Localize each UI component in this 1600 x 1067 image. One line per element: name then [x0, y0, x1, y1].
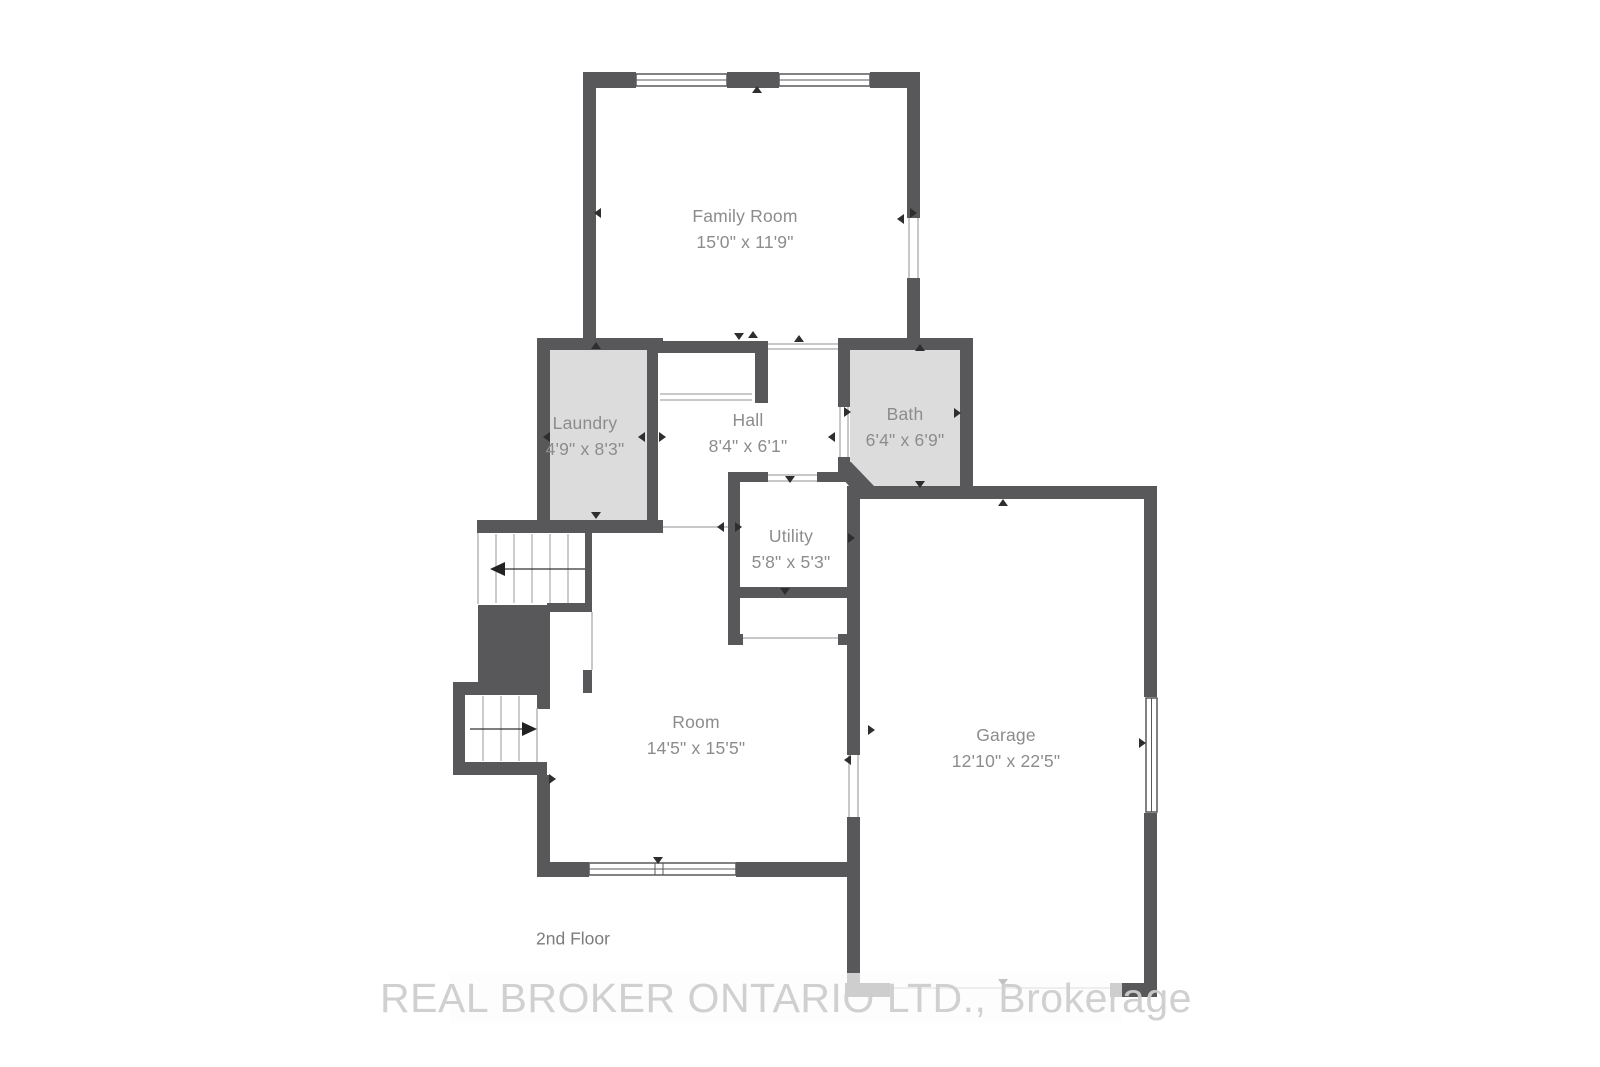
room-dims: 14'5" x 15'5"	[647, 735, 746, 761]
door-ticks	[543, 86, 1146, 986]
room-name: Utility	[752, 523, 831, 549]
room-dims: 4'9" x 8'3"	[546, 436, 625, 462]
room-dims: 6'4" x 6'9"	[866, 427, 945, 453]
room-label-utility: Utility 5'8" x 5'3"	[752, 523, 831, 575]
room-name: Bath	[866, 401, 945, 427]
room-label-bath: Bath 6'4" x 6'9"	[866, 401, 945, 453]
room-dims: 8'4" x 6'1"	[709, 433, 788, 459]
room-dims: 12'10" x 22'5"	[952, 748, 1061, 774]
room-name: Laundry	[546, 410, 625, 436]
room-name: Hall	[709, 407, 788, 433]
room-dims: 15'0" x 11'9"	[692, 229, 797, 255]
stair-landing-void	[478, 605, 550, 683]
room-label-garage: Garage 12'10" x 22'5"	[952, 722, 1061, 774]
floor-plan: Family Room 15'0" x 11'9" Laundry 4'9" x…	[0, 0, 1600, 1067]
room-label-room: Room 14'5" x 15'5"	[647, 709, 746, 761]
room-label-laundry: Laundry 4'9" x 8'3"	[546, 410, 625, 462]
watermark-text: REAL BROKER ONTARIO LTD., Brokerage	[380, 975, 1192, 1022]
floor-label: 2nd Floor	[536, 929, 610, 950]
room-dims: 5'8" x 5'3"	[752, 549, 831, 575]
room-label-hall: Hall 8'4" x 6'1"	[709, 407, 788, 459]
up-arrow-icon	[490, 562, 505, 576]
room-name: Room	[647, 709, 746, 735]
room-name: Garage	[952, 722, 1061, 748]
watermark-band: REAL BROKER ONTARIO LTD., Brokerage	[450, 973, 1122, 1023]
room-name: Family Room	[692, 203, 797, 229]
room-label-family-room: Family Room 15'0" x 11'9"	[692, 203, 797, 255]
down-arrow-icon	[522, 722, 537, 736]
